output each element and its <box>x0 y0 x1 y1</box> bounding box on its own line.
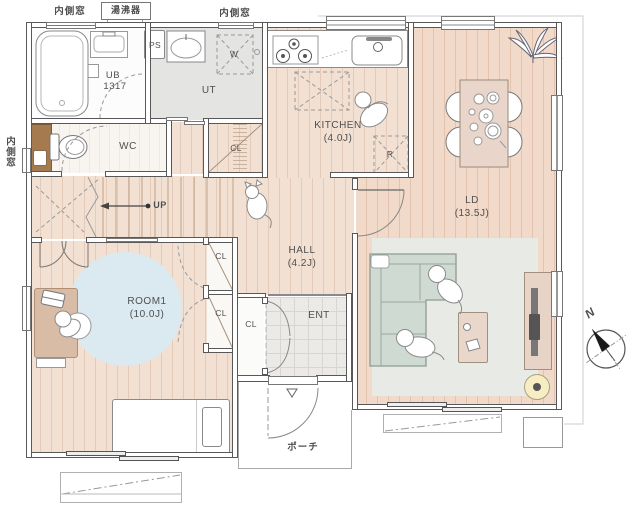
inner-window-label-top-mid: 内側窓 <box>219 8 251 20</box>
ub-size-label: 1317 <box>103 81 126 93</box>
plant <box>509 28 561 63</box>
wall-ent-east <box>346 293 352 382</box>
wall-ld-west-lower <box>352 233 358 410</box>
wall-clc-stub-top <box>262 297 268 304</box>
closet-door-arcs <box>178 246 204 343</box>
coffee-table-items <box>464 324 481 352</box>
kitchen-callout <box>322 50 348 58</box>
wc-window <box>22 148 31 173</box>
ld-right-window-lower <box>551 271 563 317</box>
ut-sliding-door-b <box>184 121 205 125</box>
ld-right-window-upper <box>551 95 563 171</box>
ld-door <box>358 190 404 236</box>
bath-window <box>46 22 96 29</box>
wall-left <box>26 22 32 458</box>
stove <box>273 36 318 64</box>
dining-table <box>460 80 508 167</box>
room1-label: ROOM1 <box>127 296 166 308</box>
stair-winder-lines <box>36 178 100 232</box>
bathtub <box>36 31 88 116</box>
wall-right <box>556 22 562 410</box>
washer-label: W <box>230 48 238 60</box>
ld-top-window <box>441 16 495 30</box>
kitchen-label: KITCHEN <box>314 120 361 132</box>
up-arrow <box>100 203 150 210</box>
plan-linework <box>0 0 640 516</box>
up-label: UP <box>153 199 167 211</box>
floorplan: 内側窓 湯沸器 内側窓 内側窓 PS UT W UB 1317 WC CL KI… <box>0 0 640 516</box>
washer-tap <box>255 50 260 55</box>
wall-ld-west-upper <box>352 178 358 190</box>
wall-kitchen-bottom <box>330 172 414 178</box>
closet-label-b: CL <box>215 307 226 319</box>
wall-cla-stub1 <box>203 237 209 245</box>
closet-label-c: CL <box>245 318 256 330</box>
inner-window-label-top-left: 内側窓 <box>54 6 86 18</box>
range-hood-box <box>295 72 349 110</box>
wall-ut-kitchen <box>262 22 268 178</box>
ps-label: PS <box>149 39 161 51</box>
wall-room1-east <box>232 237 238 458</box>
wall-wc-bottom-right <box>105 171 172 177</box>
wall-closet-bottom <box>203 172 264 178</box>
wall-closet-left <box>203 118 209 178</box>
laptop-icon <box>41 290 65 308</box>
ld-size-label: (13.5J) <box>455 208 490 220</box>
wall-clc-stub-bottom <box>262 368 268 375</box>
stair-treads <box>103 177 233 237</box>
hall-size-label: (4.2J) <box>288 258 317 270</box>
wall-ut-bottom <box>203 118 266 124</box>
fridge-label: R <box>387 148 393 160</box>
utility-window <box>218 22 254 29</box>
room1-sliding-door <box>106 238 158 242</box>
ld-label: LD <box>465 195 479 207</box>
kitchen-sink <box>352 36 402 65</box>
wall-wc-right <box>166 118 172 177</box>
kitchen-size-label: (4.0J) <box>324 133 353 145</box>
entrance-label: ENT <box>308 310 330 322</box>
wall-bath-ut <box>145 22 151 124</box>
utility-sink <box>167 31 205 62</box>
hall-label: HALL <box>288 245 315 257</box>
room1-double-door <box>40 240 88 267</box>
room1-side-window <box>22 286 31 331</box>
porch-label: ポーチ <box>287 442 319 454</box>
stair-break-line <box>86 177 98 237</box>
closet-c-doors <box>266 301 290 373</box>
wall-cla-stub3 <box>203 343 209 353</box>
room1-size-label: (10.0J) <box>130 309 165 321</box>
floor-lamp-center <box>533 383 541 391</box>
room1-sliding-window-a <box>66 451 126 456</box>
bath-vanity-basin <box>94 32 124 52</box>
wc-label: WC <box>119 141 137 153</box>
front-door <box>268 388 318 438</box>
kitchen-window <box>326 16 406 30</box>
toilet <box>50 134 87 160</box>
closet-label-a: CL <box>215 250 226 262</box>
front-door-slab <box>268 376 318 385</box>
closet-label-stairs: CL <box>230 142 241 154</box>
wall-cla-stub2 <box>203 285 209 299</box>
ld-sliding-window-b <box>442 407 502 412</box>
tv <box>529 288 540 356</box>
ld-sliding-window-a <box>387 402 447 407</box>
water-heater-label: 湯沸器 <box>101 2 151 20</box>
cat <box>245 180 271 228</box>
inner-window-label-left: 内側窓 <box>3 136 15 168</box>
wall-kitchen-right <box>408 22 414 178</box>
ut-label: UT <box>202 85 216 97</box>
room1-sliding-window-b <box>119 456 179 461</box>
